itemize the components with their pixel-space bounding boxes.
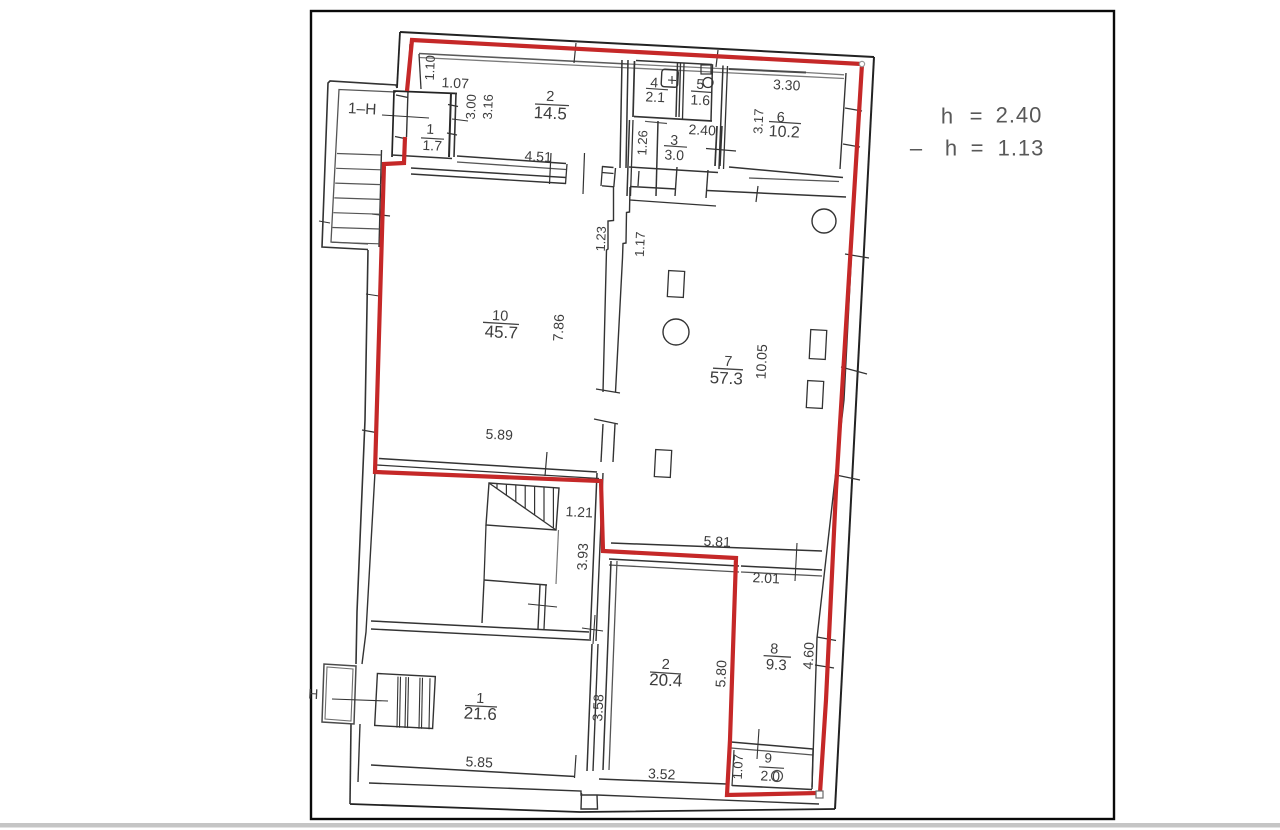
svg-text:9: 9	[764, 750, 772, 765]
svg-text:h: h	[945, 136, 957, 161]
svg-text:1.21: 1.21	[565, 503, 593, 520]
svg-text:1–Н: 1–Н	[348, 100, 377, 118]
svg-text:1.23: 1.23	[593, 226, 609, 252]
svg-text:1.10: 1.10	[422, 55, 438, 81]
svg-text:2.40: 2.40	[996, 103, 1043, 128]
svg-text:3.30: 3.30	[773, 76, 801, 93]
svg-text:7: 7	[724, 354, 733, 370]
svg-text:5.89: 5.89	[485, 426, 513, 443]
svg-text:3.17: 3.17	[750, 108, 766, 134]
svg-text:Н: Н	[308, 686, 319, 702]
svg-text:1.13: 1.13	[998, 136, 1045, 161]
svg-text:45.7: 45.7	[484, 322, 518, 343]
svg-text:3.16: 3.16	[480, 94, 496, 120]
svg-text:14.5: 14.5	[533, 103, 567, 124]
svg-text:3.58: 3.58	[589, 694, 606, 722]
svg-text:57.3: 57.3	[709, 368, 743, 389]
svg-text:1.07: 1.07	[441, 74, 469, 91]
svg-text:3.52: 3.52	[648, 765, 676, 782]
svg-text:2: 2	[546, 89, 555, 105]
svg-text:21.6: 21.6	[463, 704, 497, 725]
svg-text:=: =	[971, 136, 984, 161]
svg-text:=: =	[970, 104, 983, 129]
svg-text:2.1: 2.1	[645, 88, 665, 105]
svg-text:1.6: 1.6	[690, 91, 710, 108]
svg-text:3.00: 3.00	[463, 94, 479, 120]
svg-text:1.26: 1.26	[634, 130, 650, 156]
svg-text:9.3: 9.3	[765, 656, 787, 674]
svg-text:5.81: 5.81	[703, 533, 731, 550]
svg-text:10.2: 10.2	[768, 123, 800, 142]
svg-text:1: 1	[426, 121, 435, 137]
svg-text:1.07: 1.07	[730, 754, 746, 780]
svg-text:20.4: 20.4	[649, 670, 683, 691]
svg-text:5.80: 5.80	[712, 660, 729, 688]
svg-text:1.7: 1.7	[422, 137, 442, 154]
svg-text:1.17: 1.17	[632, 231, 648, 257]
svg-text:–: –	[910, 136, 923, 161]
svg-text:h: h	[941, 104, 953, 129]
svg-text:2.40: 2.40	[688, 121, 716, 138]
svg-text:3.93: 3.93	[574, 543, 591, 571]
svg-text:8: 8	[770, 641, 779, 657]
svg-text:2.01: 2.01	[752, 569, 780, 586]
svg-text:3.0: 3.0	[664, 146, 684, 163]
svg-text:7.86: 7.86	[550, 314, 567, 342]
svg-text:10.05: 10.05	[752, 344, 770, 380]
svg-text:5: 5	[696, 76, 705, 92]
svg-text:4.51: 4.51	[524, 148, 552, 165]
svg-text:5.85: 5.85	[465, 753, 493, 770]
svg-text:4.60: 4.60	[800, 642, 817, 670]
